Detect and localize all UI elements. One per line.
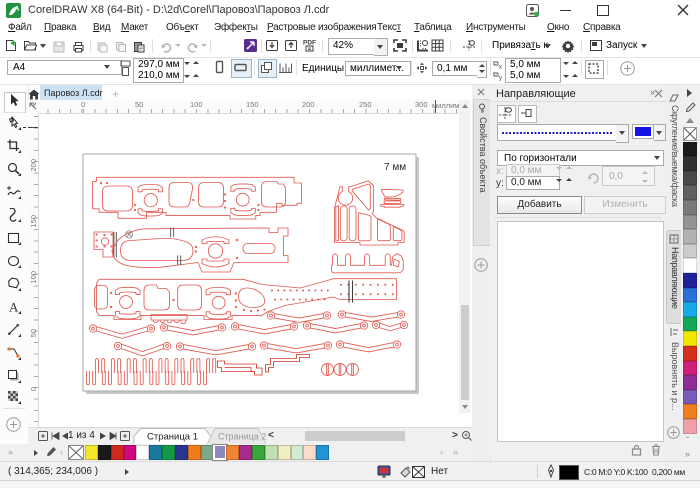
svg-text:Страница 1: Страница 1 [147,432,198,443]
svg-text:PDF: PDF [303,40,316,47]
svg-text:7 мм: 7 мм [384,162,406,173]
svg-text:Страница 2: Страница 2 [218,432,266,442]
